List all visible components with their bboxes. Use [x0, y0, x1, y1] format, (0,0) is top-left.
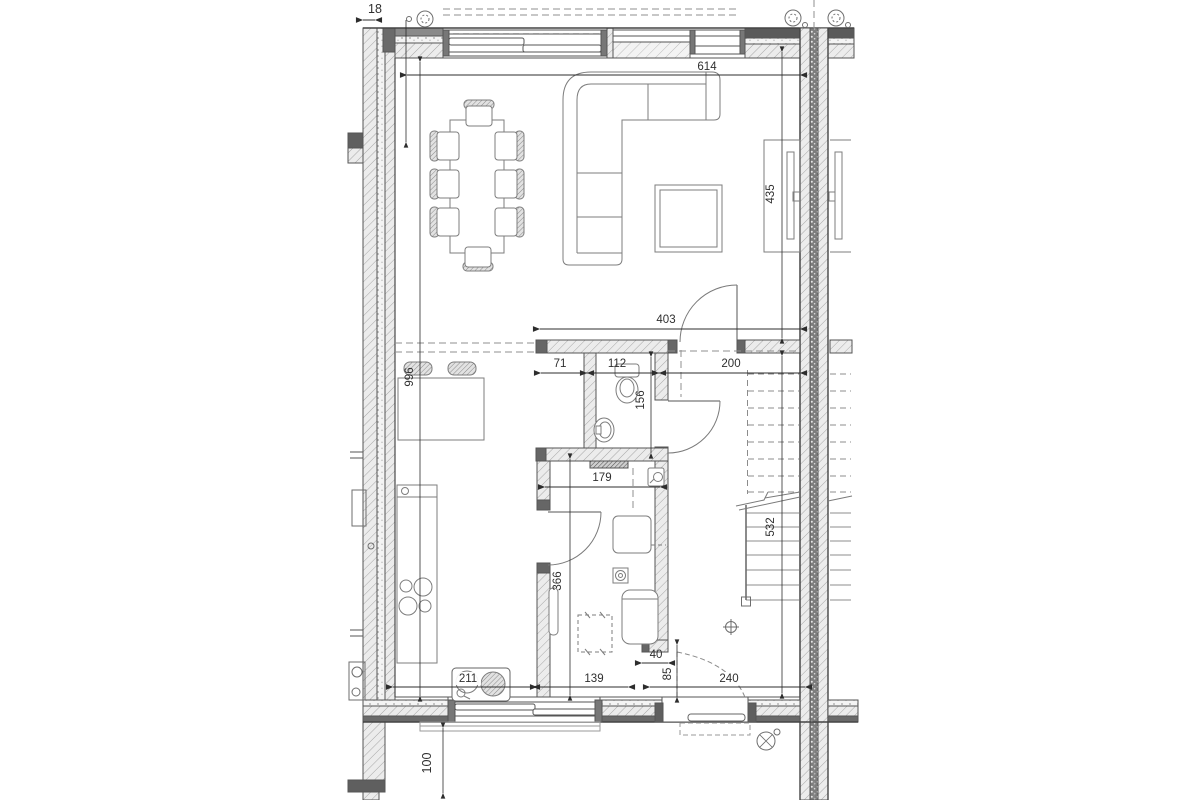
dim-total-depth: 996: [404, 367, 416, 386]
dim-wall-offset: 18: [368, 2, 382, 16]
bottom-wall: [363, 697, 858, 722]
top-window-fixed: [690, 30, 745, 54]
wc-door: [668, 401, 720, 453]
dim-living-width: 614: [697, 61, 717, 73]
party-wall: [800, 28, 828, 800]
dim-tech-width: 179: [592, 472, 611, 484]
living-hall-door: [680, 285, 737, 342]
tech-room-door: [548, 512, 601, 565]
dim-stair-run: 532: [765, 517, 777, 536]
boiler: [622, 590, 658, 644]
dim-wall-nib: 40: [650, 649, 663, 661]
left-wall: [348, 28, 400, 800]
neighbour-tv-unit: [829, 140, 851, 252]
rainwater-pipe-icon: [785, 10, 808, 28]
rainwater-pipe-icon: [407, 11, 434, 27]
floor-grate: [590, 461, 628, 468]
floorplan-drawing: 18 614 996 435 403 71 112 200 156 179 36…: [0, 0, 1200, 800]
top-wall: [363, 28, 854, 58]
dim-wc-offset: 71: [554, 358, 567, 370]
dim-stoop-depth: 100: [420, 753, 434, 774]
floor-drain-icon: [613, 568, 628, 583]
coffee-table: [655, 185, 722, 252]
neighbour-stair: [828, 374, 852, 600]
dim-entry-bay: 240: [719, 673, 738, 685]
bar-stool: [448, 362, 476, 375]
vent-unit: [648, 468, 664, 486]
kitchen-counter: [397, 485, 437, 663]
staircase: [736, 370, 852, 606]
floorplan-sheet: 18 614 996 435 403 71 112 200 156 179 36…: [0, 0, 1200, 800]
wash-basin: [594, 418, 614, 442]
radiator: [549, 588, 558, 635]
dim-tech-depth: 366: [552, 571, 564, 590]
furniture: [397, 72, 851, 701]
top-window-sliding: [443, 30, 607, 56]
dim-hall-width: 403: [656, 314, 675, 326]
top-window-high: [613, 30, 690, 42]
condens-unit: [578, 612, 612, 655]
rainwater-pipe-icon: [757, 729, 780, 750]
dim-entry-gap: 85: [662, 668, 674, 681]
dim-stair-bay: 200: [721, 358, 740, 370]
center-mark-icon: [723, 619, 739, 635]
rainwater-pipe-icon: [828, 10, 851, 28]
dim-living-depth: 435: [765, 184, 777, 203]
dim-wc-depth: 156: [635, 390, 647, 409]
dim-wc-width: 112: [608, 358, 626, 370]
dim-kitchen-run: 211: [459, 673, 477, 685]
dim-kitchen-window: 139: [584, 673, 603, 685]
stair-upper-dashed: [748, 370, 800, 494]
